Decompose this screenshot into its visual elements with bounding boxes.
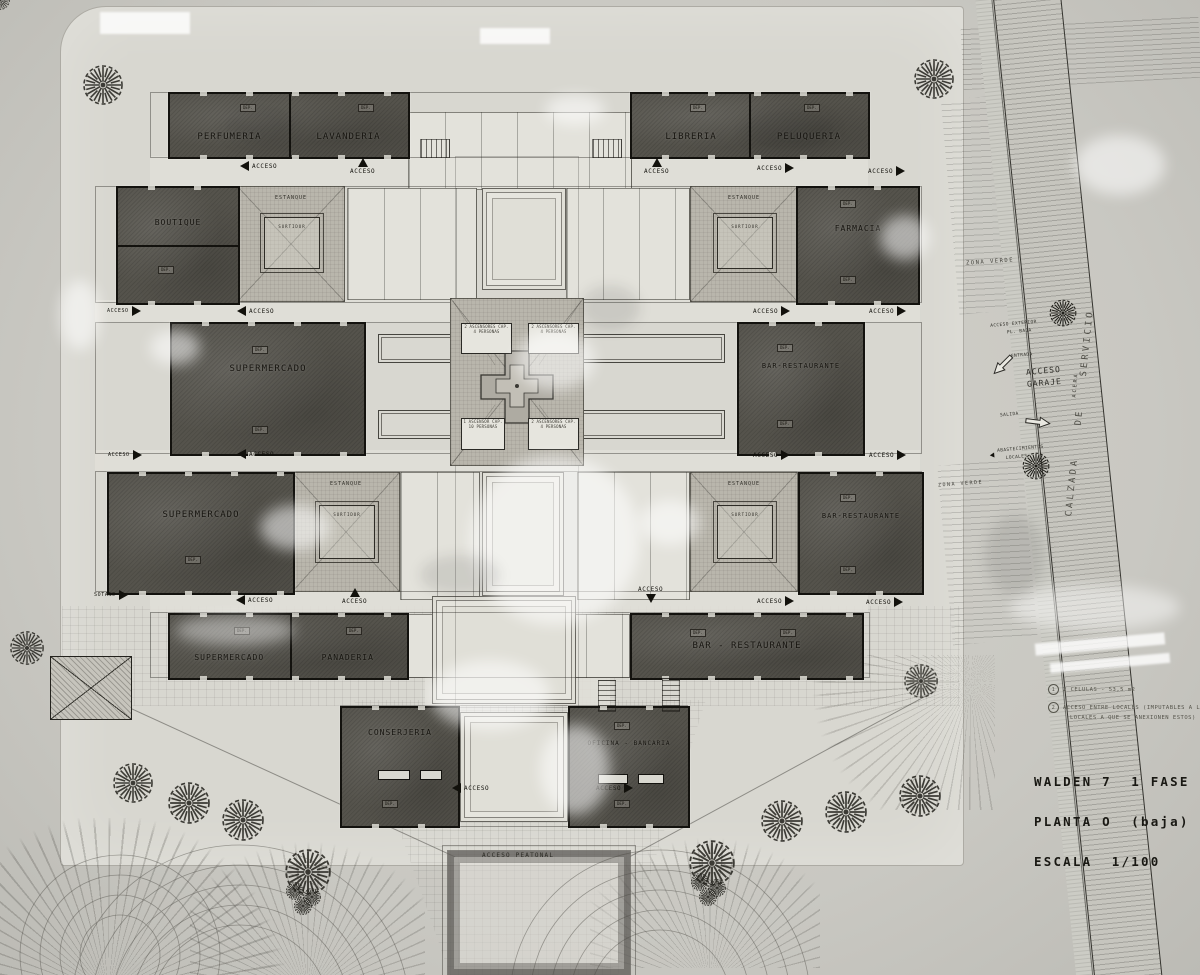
acceso-marker: ACCESO [866,597,903,607]
arrow-left-icon [240,161,249,171]
legend-number-1: 1 [1048,684,1059,695]
arrow-left-icon [236,595,245,605]
dep-tag: DEP. [690,104,706,112]
acceso-label: ACCESO [249,308,274,315]
scan-whitebar [100,12,190,34]
shop-bar-restaurante-mid: BAR-RESTAURANTE DEP. DEP. [737,322,865,456]
legend-text-2b: LOCALES A QUE SE ANEXIONEN ESTOS) 16,75 … [1070,715,1200,721]
dep-tag: DEP. [840,276,856,284]
arrow-left-icon [237,449,246,459]
scan-glare [260,505,330,550]
shop-bar-restaurante-low: BAR-RESTAURANTE DEP. DEP. [798,472,924,595]
dep-tag: DEP. [840,566,856,574]
arrow-up-icon [652,158,662,167]
scan-glare [1010,585,1180,630]
legend-text-2a: ACCESO ENTRE LOCALES (IMPUTABLES A LOS [1063,705,1200,711]
legend-item-1: 1 2 CELULAS - 53,5 m2 [1048,684,1135,695]
pond-label: ESTANQUE [691,195,797,201]
shop-boutique: BOUTIQUE DEP. [116,186,240,305]
shop-conserjeria: CONSERJERIA DEP. [340,706,460,828]
scan-smudge [225,105,295,145]
courtyard-pond: ESTANQUE SURTIDOR [690,186,798,302]
dep-tag: DEP. [614,800,630,808]
acceso-label: ACCESO [757,598,782,605]
legend-number-2: 2 [1048,702,1059,713]
scan-glare [470,455,640,625]
scan-glare [1075,135,1165,195]
dep-tag: DEP. [840,494,856,502]
acceso-marker: ACCESO [868,166,905,176]
dep-tag: DEP. [777,420,793,428]
scan-glare [880,215,930,260]
acceso-marker: ACCESO [107,306,141,316]
title-scale: ESCALA 1/100 [1034,854,1160,869]
abastecimientos-label: ABASTECIMIENTOS [997,445,1044,454]
shop-bar-restaurante-bottom: BAR - RESTAURANTE DEP. DEP. [630,613,864,680]
fountain-basin: SURTIDOR [264,217,320,269]
stairs [420,139,450,158]
shop-label-bar-restaurante: BAR-RESTAURANTE [739,362,863,370]
acceso-marker: ACCESO [240,161,277,171]
sotano-label: SOTANO [94,592,116,598]
courtyard-pond: ESTANQUE SURTIDOR [690,472,798,592]
dep-tag: DEP. [780,629,796,637]
planter [565,410,725,439]
shop-label-supermercado: SUPERMERCADO [172,364,364,374]
fountain-label: SURTIDOR [718,512,772,517]
acceso-marker: ACCESO [757,596,794,606]
arrow-right-icon [781,450,790,460]
acceso-marker: ACCESO [753,306,790,316]
acceso-label: ACCESO [342,598,367,605]
scan-glare [175,615,295,645]
scan-glare [545,95,605,125]
shop-label-supermercado: SUPERMERCADO [170,653,289,662]
acceso-marker: ACCESO [237,306,274,316]
arrow-right-icon [785,163,794,173]
legend-text-1: 2 CELULAS - 53,5 m2 [1063,687,1135,693]
acceso-marker: ACCESO [869,306,906,316]
shop-label-bar-restaurante: BAR-RESTAURANTE [800,512,922,520]
arrow-right-icon [624,783,633,793]
dep-tag: DEP. [382,800,398,808]
acceso-label: ACCESO [644,168,669,175]
pond-label: ESTANQUE [238,195,344,201]
elevator-box: 2 ASCENSORES CAP. 4 PERSONAS [528,418,579,450]
dep-tag: DEP. [614,722,630,730]
acceso-label: ACCESO [866,599,891,606]
acceso-marker: ACCESO [342,588,367,605]
acceso-label: ACCESO [464,785,489,792]
arrow-left-icon [990,453,995,458]
fountain-label: SURTIDOR [320,512,374,517]
acceso-label: ACCESO [868,168,893,175]
arrow-left-icon [452,783,461,793]
title-project: WALDEN 7 1 FASE [1034,774,1190,789]
walkway-rings [447,850,631,975]
scan-glare [60,280,100,350]
acceso-marker: ACCESO [108,450,142,460]
acceso-label: ACCESO [107,308,129,314]
floor-plan-canvas: ESTANQUE SURTIDOR ESTANQUE SURTIDOR ESTA… [0,0,1200,975]
fountain-basin: SURTIDOR [717,505,773,559]
scan-glare [430,660,550,730]
sotano-marker: SOTANO [94,590,128,600]
acceso-marker: ACCESO [644,158,669,175]
acceso-marker: ACCESO [350,158,375,175]
arrow-right-icon [133,450,142,460]
shop-label-panaderia: PANADERIA [289,653,408,662]
stairs [598,680,616,712]
acceso-label: ACCESO [638,586,663,593]
acceso-label: ACCESO [869,308,894,315]
counter-slot [378,770,410,780]
wall-divider [116,245,240,247]
entrada-label: ENTRADA [1011,352,1033,359]
stairs [662,678,680,712]
counter-slot [420,770,442,780]
salida-arrow-icon [1024,415,1051,430]
scan-glare [540,725,610,815]
service-tower [50,656,132,720]
acceso-garaje-label: ACCESO GARAJE [1012,363,1076,392]
garage-ramp-block: ENTRADA ACCESO GARAJE SALIDA [970,334,1087,447]
scan-whitebar [480,28,550,44]
arrow-right-icon [132,306,141,316]
acceso-marker: ACCESO [753,450,790,460]
arrow-up-icon [350,588,360,597]
fountain-label: SURTIDOR [265,224,319,229]
courtyard-pond: ESTANQUE SURTIDOR [237,186,345,302]
arrow-left-icon [237,306,246,316]
counter-slot [638,774,664,784]
scan-smudge [745,110,835,150]
pond-label: ESTANQUE [691,481,797,487]
shop-label-libreria: LIBRERIA [632,132,750,142]
elevator-box: 1 ASCENSOR CAP. 10 PERSONAS [461,418,505,450]
shop-label-boutique: BOUTIQUE [118,218,238,227]
acceso-label: ACCESO [869,452,894,459]
garden-fan [190,818,425,975]
acceso-label: ACCESO [108,452,130,458]
scan-smudge [580,285,640,330]
acceso-label: ACCESO [350,168,375,175]
acceso-peatonal-label: ACCESO PEATONAL [482,852,554,859]
acceso-label: ACCESO [248,597,273,604]
acceso-marker: ACCESO [757,163,794,173]
scan-glare [515,330,595,390]
dep-tag: DEP. [252,346,268,354]
acceso-label: ACCESO [249,451,274,458]
arrow-right-icon [896,166,905,176]
legend-item-2: 2 ACCESO ENTRE LOCALES (IMPUTABLES A LOS [1048,702,1200,713]
dep-tag: DEP. [840,200,856,208]
dep-tag: DEP. [158,266,174,274]
wall-divider [290,613,292,680]
arrow-down-icon [646,594,656,603]
shop-label-lavanderia: LAVANDERIA [289,132,408,142]
scan-smudge [420,555,500,595]
acceso-label: ACCESO [753,452,778,459]
dep-tag: DEP. [777,344,793,352]
acceso-label: ACCESO [252,163,277,170]
arrow-up-icon [358,158,368,167]
acceso-marker: ACCESO [869,450,906,460]
arrow-right-icon [781,306,790,316]
acceso-label: ACCESO [757,165,782,172]
acceso-label: ACCESO [753,308,778,315]
shop-label-conserjeria: CONSERJERIA [342,728,458,737]
pl-baja-label: PL. BAJA [1007,328,1032,335]
elevator-box: 2 ASCENSORES CAP. 4 PERSONAS [461,323,512,354]
arrow-right-icon [894,597,903,607]
title-plan-level: PLANTA O (baja) [1034,814,1190,829]
dep-tag: DEP. [690,629,706,637]
arrow-right-icon [897,450,906,460]
acceso-marker: ACCESO [237,449,274,459]
fountain-basin: SURTIDOR [717,217,773,269]
acceso-marker: ACCESO [452,783,489,793]
pond-label: ESTANQUE [293,481,399,487]
arrow-right-icon [785,596,794,606]
dep-tag: DEP. [358,104,374,112]
arrow-right-icon [119,590,128,600]
shop-supermercado-mid: SUPERMERCADO DEP. DEP. [170,322,366,456]
scan-glare [640,500,700,545]
salida-label: SALIDA [1000,412,1019,419]
dep-tag: DEP. [346,627,362,635]
locales-label: LOCALES [1006,454,1028,461]
dep-tag: DEP. [252,426,268,434]
scan-smudge [985,515,1045,595]
scan-glare [150,330,200,365]
acceso-marker: ACCESO [638,586,663,603]
dep-tag: DEP. [185,556,201,564]
stairs [592,139,622,158]
acceso-marker: ACCESO [236,595,273,605]
arrow-right-icon [897,306,906,316]
garage-access-group: ACCESO EXTERIOR PL. BAJA ENTRADA ACCESO … [966,313,1109,474]
shop-label-bar-restaurante: BAR - RESTAURANTE [632,641,862,651]
legend-item-2-cont: LOCALES A QUE SE ANEXIONEN ESTOS) 16,75 … [1070,715,1200,721]
fountain-label: SURTIDOR [718,224,772,229]
